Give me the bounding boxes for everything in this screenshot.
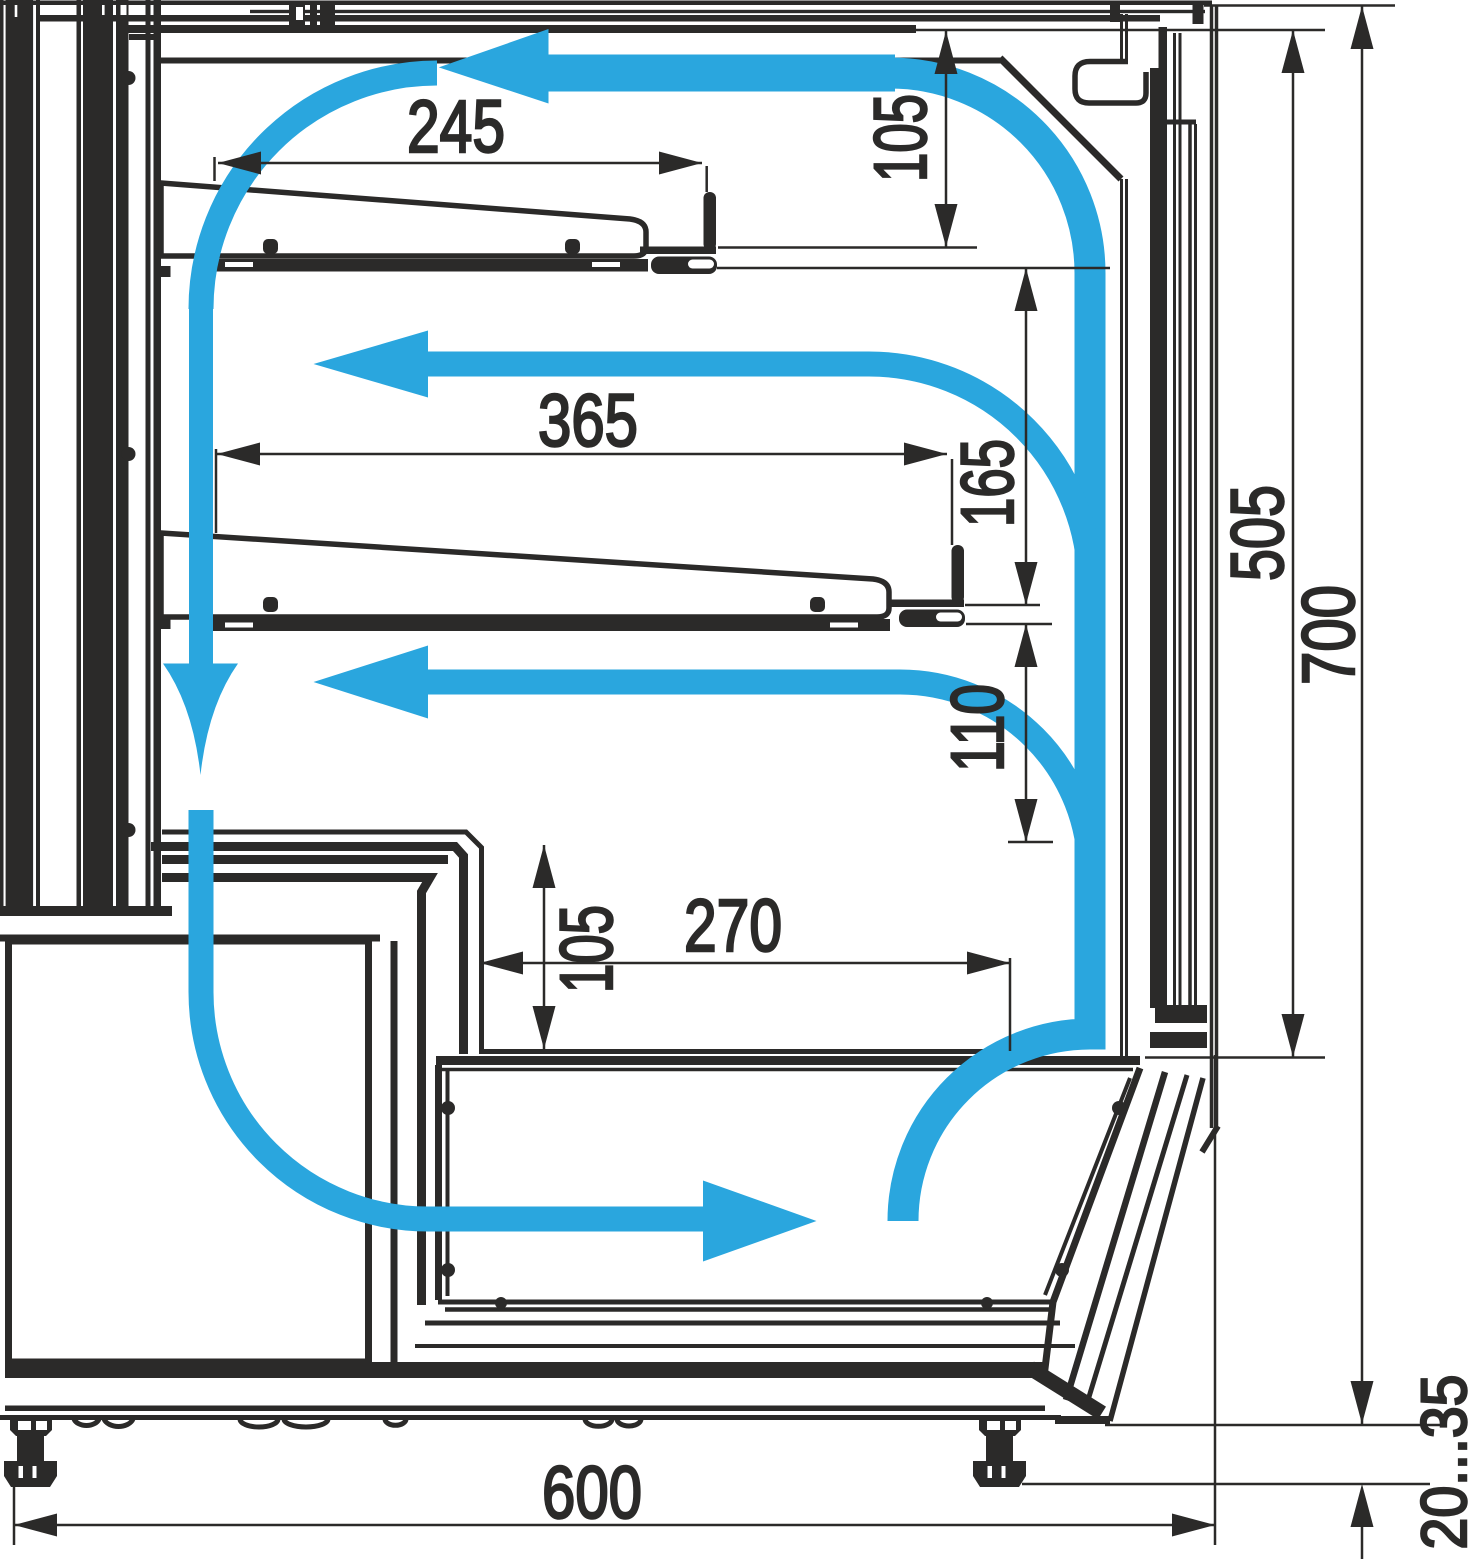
svg-text:600: 600 — [542, 1451, 642, 1534]
svg-text:105: 105 — [545, 905, 628, 993]
svg-text:20...35: 20...35 — [1408, 1375, 1468, 1550]
svg-text:245: 245 — [407, 85, 505, 168]
svg-text:105: 105 — [859, 94, 942, 182]
svg-text:700: 700 — [1287, 585, 1370, 685]
svg-text:365: 365 — [538, 379, 638, 462]
svg-text:505: 505 — [1216, 485, 1299, 581]
svg-text:110: 110 — [936, 684, 1019, 772]
svg-text:270: 270 — [684, 884, 782, 967]
svg-text:165: 165 — [946, 439, 1029, 527]
